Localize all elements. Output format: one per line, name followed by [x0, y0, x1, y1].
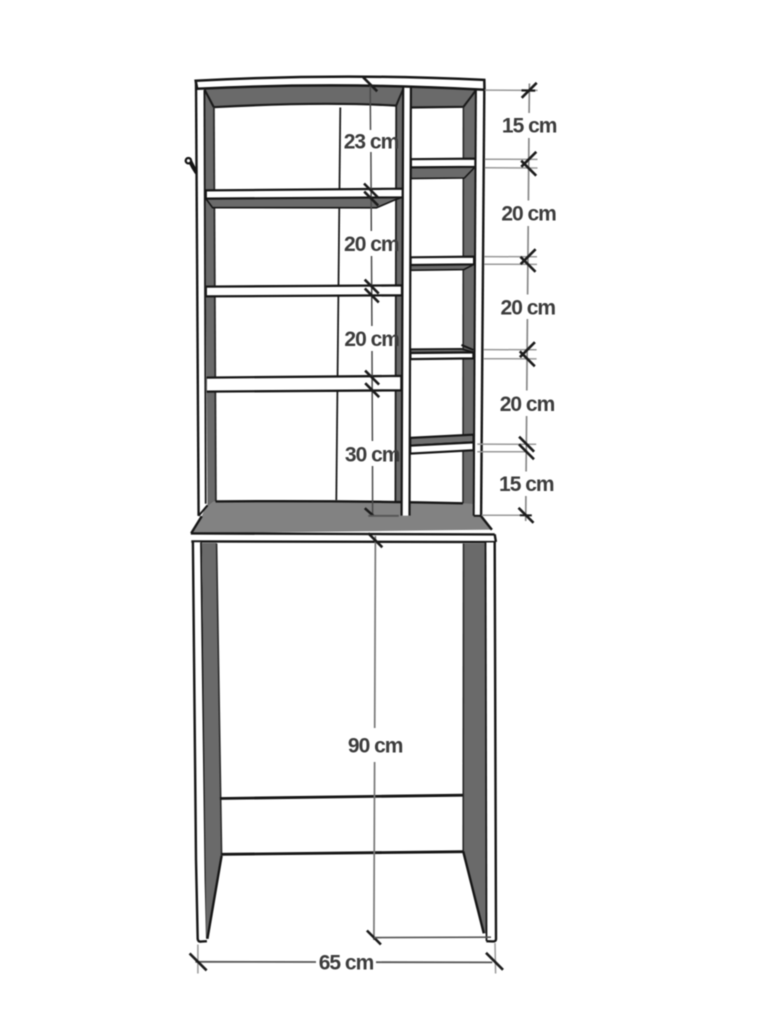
svg-text:15 cm: 15 cm — [502, 115, 557, 138]
svg-text:20 cm: 20 cm — [344, 233, 399, 256]
svg-text:23 cm: 23 cm — [344, 131, 399, 154]
svg-text:30 cm: 30 cm — [345, 444, 400, 467]
svg-text:15 cm: 15 cm — [499, 473, 554, 496]
svg-text:20 cm: 20 cm — [344, 328, 399, 351]
svg-text:65 cm: 65 cm — [319, 952, 374, 975]
svg-text:20 cm: 20 cm — [501, 203, 556, 226]
svg-text:20 cm: 20 cm — [500, 393, 555, 416]
svg-text:90 cm: 90 cm — [348, 735, 403, 758]
svg-text:20 cm: 20 cm — [501, 297, 556, 320]
